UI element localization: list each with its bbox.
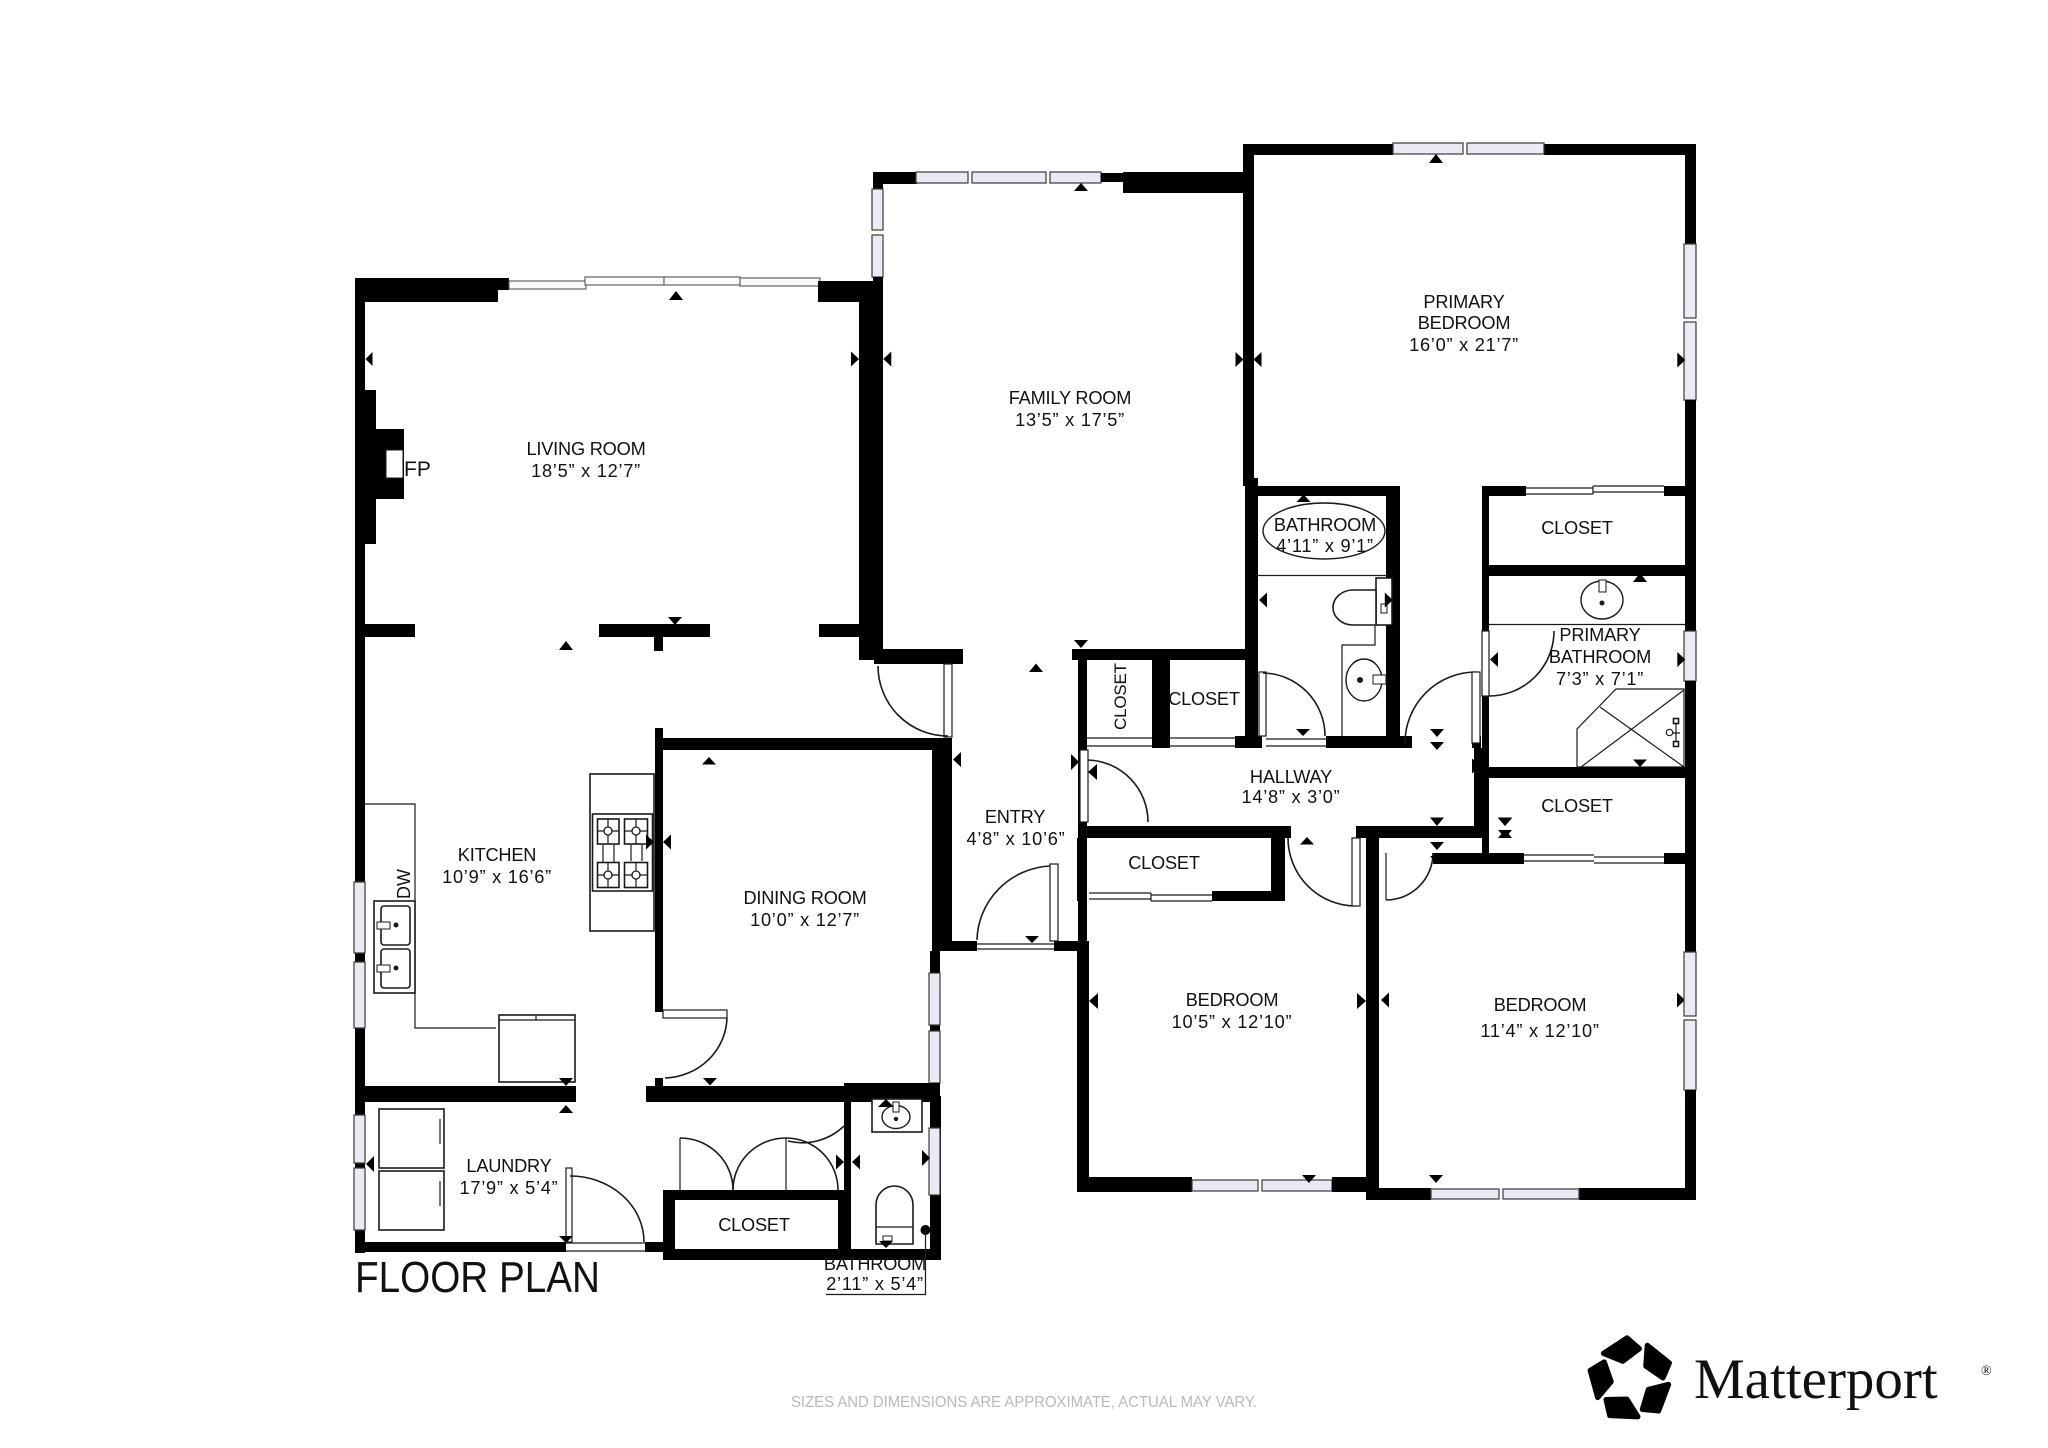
svg-text:CLOSET: CLOSET [1111, 663, 1130, 730]
svg-text:BEDROOM: BEDROOM [1418, 313, 1511, 333]
svg-text:4’11” x 9’1”: 4’11” x 9’1” [1276, 536, 1374, 556]
svg-text:SIZES AND DIMENSIONS ARE APPRO: SIZES AND DIMENSIONS ARE APPROXIMATE, AC… [791, 1394, 1257, 1411]
svg-text:16’0” x 21’7”: 16’0” x 21’7” [1409, 335, 1519, 355]
svg-text:LAUNDRY: LAUNDRY [466, 1156, 551, 1176]
svg-text:CLOSET: CLOSET [1541, 796, 1613, 816]
svg-text:Matterport: Matterport [1694, 1348, 1938, 1411]
svg-text:4’8” x 10’6”: 4’8” x 10’6” [967, 829, 1066, 849]
svg-text:FLOOR PLAN: FLOOR PLAN [355, 1253, 600, 1302]
svg-text:BEDROOM: BEDROOM [1186, 990, 1279, 1010]
svg-text:7’3” x 7’1”: 7’3” x 7’1” [1556, 669, 1644, 689]
svg-text:PRIMARY: PRIMARY [1423, 292, 1504, 312]
svg-text:CLOSET: CLOSET [1541, 518, 1613, 538]
svg-text:PRIMARY: PRIMARY [1559, 625, 1640, 645]
svg-text:DINING ROOM: DINING ROOM [743, 888, 866, 908]
svg-text:CLOSET: CLOSET [1128, 853, 1200, 873]
svg-text:KITCHEN: KITCHEN [458, 845, 536, 865]
svg-text:10’9” x 16’6”: 10’9” x 16’6” [442, 867, 552, 887]
svg-text:DW: DW [394, 869, 414, 899]
svg-text:BATHROOM: BATHROOM [1274, 515, 1376, 535]
svg-text:HALLWAY: HALLWAY [1250, 767, 1332, 787]
svg-text:BATHROOM: BATHROOM [824, 1254, 926, 1274]
svg-text:BEDROOM: BEDROOM [1494, 995, 1587, 1015]
svg-text:CLOSET: CLOSET [1168, 689, 1240, 709]
svg-text:14’8” x 3’0”: 14’8” x 3’0” [1242, 787, 1341, 807]
svg-text:2’11” x 5’4”: 2’11” x 5’4” [826, 1274, 924, 1294]
svg-text:10’0” x 12’7”: 10’0” x 12’7” [750, 910, 860, 930]
svg-text:ENTRY: ENTRY [985, 807, 1045, 827]
svg-text:13’5” x 17’5”: 13’5” x 17’5” [1015, 410, 1125, 430]
svg-text:17’9” x 5’4”: 17’9” x 5’4” [460, 1178, 559, 1198]
svg-text:®: ® [1981, 1364, 1992, 1379]
svg-text:10’5” x 12’10”: 10’5” x 12’10” [1172, 1012, 1293, 1032]
svg-text:11’4” x 12’10”: 11’4” x 12’10” [1480, 1021, 1599, 1041]
svg-text:LIVING ROOM: LIVING ROOM [526, 439, 645, 459]
svg-text:FP: FP [404, 458, 431, 481]
svg-text:CLOSET: CLOSET [718, 1215, 790, 1235]
svg-text:FAMILY ROOM: FAMILY ROOM [1009, 388, 1131, 408]
svg-text:BATHROOM: BATHROOM [1549, 647, 1651, 667]
svg-text:18’5” x 12’7”: 18’5” x 12’7” [531, 461, 641, 481]
